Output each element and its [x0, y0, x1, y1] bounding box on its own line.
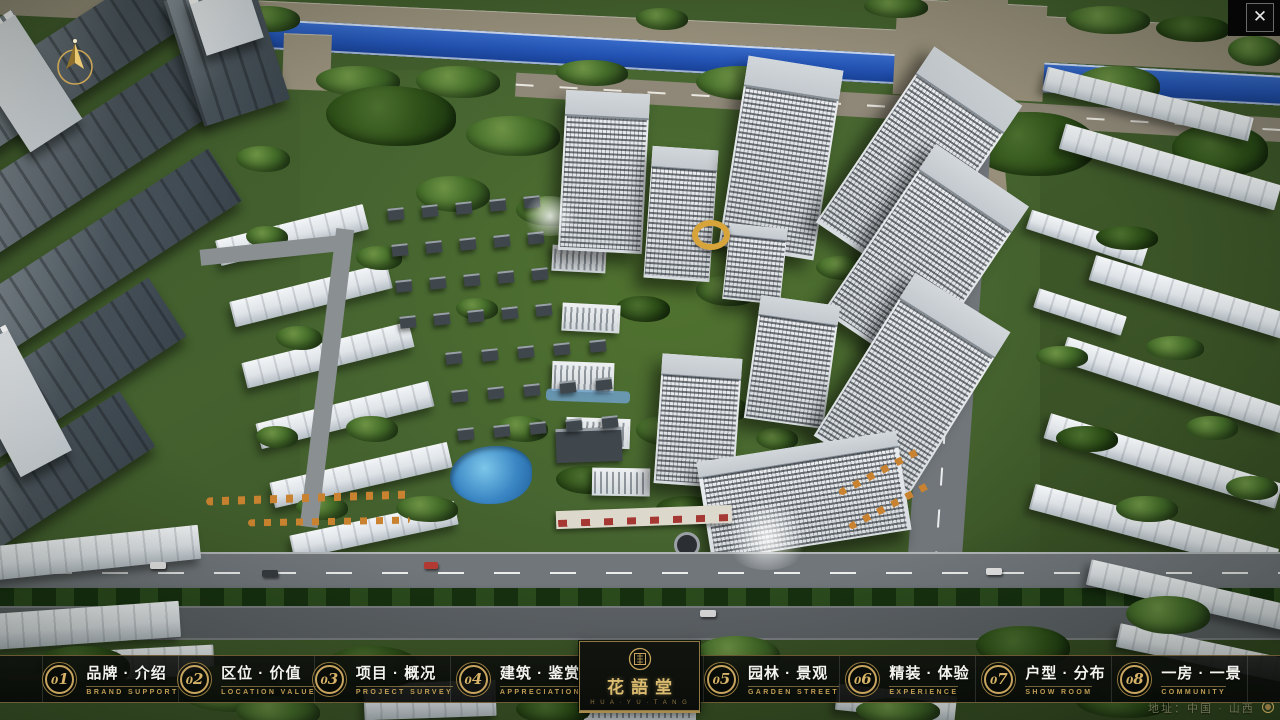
nav-item-location[interactable]: 02 区位 · 价值 LOCATION VALUE	[179, 656, 315, 702]
tree-grove	[616, 296, 670, 322]
nav-item-project[interactable]: 03 项目 · 概况 PROJECT SURVEY	[315, 656, 451, 702]
nav-label-zh: 园林 · 景观	[748, 662, 828, 683]
nav-label-zh: 一房 · 一景	[1161, 662, 1241, 683]
nav-number: 05	[713, 670, 731, 688]
nav-number: 03	[320, 670, 338, 688]
residential-tower	[744, 295, 840, 429]
nav-label-zh: 户型 · 分布	[1025, 662, 1105, 683]
tree-grove	[276, 326, 322, 350]
courtyard-house	[467, 309, 484, 323]
courtyard-house	[481, 348, 498, 362]
navbar-spacer	[1248, 656, 1280, 702]
car	[700, 610, 716, 617]
midrise-building	[592, 467, 650, 496]
nav-number-badge: 01	[42, 662, 77, 697]
sun-glare	[520, 196, 580, 236]
car	[150, 562, 166, 569]
residential-tower	[643, 146, 718, 282]
nav-label-zh: 精装 · 体验	[889, 662, 969, 683]
courtyard-house	[489, 198, 506, 212]
nav-label-en: EXPERIENCE	[889, 686, 958, 696]
nav-label-en: PROJECT SURVEY	[356, 686, 453, 696]
tree-grove	[1146, 336, 1204, 360]
courtyard-house	[517, 345, 534, 359]
courtyard-house	[497, 270, 514, 284]
courtyard-house	[595, 377, 612, 391]
courtyard-house	[555, 427, 622, 463]
courtyard-house	[445, 351, 462, 365]
courtyard-house	[455, 201, 472, 215]
nav-number-badge: 03	[312, 662, 347, 697]
sun-glare	[722, 506, 812, 570]
road	[948, 0, 1008, 28]
nav-label-zh: 品牌 · 介绍	[86, 662, 166, 683]
tree-grove	[864, 0, 928, 18]
courtyard-house	[387, 207, 404, 221]
courtyard-house	[493, 234, 510, 248]
tree-grove	[1226, 476, 1278, 500]
nav-item-interior[interactable]: 06 精装 · 体验 EXPERIENCE	[840, 656, 976, 702]
courtyard-house	[451, 389, 468, 403]
courtyard-house	[565, 418, 582, 432]
courtyard-house	[395, 279, 412, 293]
nav-label-en: BRAND SUPPORT	[86, 686, 178, 696]
courtyard-house	[601, 415, 618, 429]
courtyard-house	[457, 427, 474, 441]
courtyard-house	[535, 303, 552, 317]
courtyard-house	[493, 424, 510, 438]
nav-label-en: APPRECIATION	[500, 686, 581, 696]
nav-label-zh: 区位 · 价值	[221, 662, 301, 683]
nav-number: 04	[465, 670, 483, 688]
nav-number-badge: 06	[845, 662, 880, 697]
courtyard-house	[429, 276, 446, 290]
navbar-spacer	[0, 656, 43, 702]
brand-subtitle: H U A · Y U · T A N G	[590, 700, 689, 706]
nav-item-brand[interactable]: 01 品牌 · 介绍 BRAND SUPPORT	[43, 656, 179, 702]
nav-number: 07	[990, 670, 1008, 688]
tree-grove	[1056, 426, 1118, 452]
nav-number: 06	[854, 670, 872, 688]
nav-number-badge: 05	[704, 662, 739, 697]
courtyard-house	[553, 342, 570, 356]
nav-item-floorplan[interactable]: 07 户型 · 分布 SHOW ROOM	[976, 656, 1112, 702]
nav-number-badge: 07	[981, 662, 1016, 697]
landscape-pond	[450, 446, 532, 504]
car	[424, 562, 438, 569]
close-button[interactable]: ✕	[1246, 3, 1274, 32]
tree-grove	[636, 8, 688, 30]
tree-grove	[1116, 496, 1178, 522]
nav-item-landscape[interactable]: 05 园林 · 景观 GARDEN STREET	[704, 656, 840, 702]
brand-title: 花語堂	[600, 673, 679, 698]
courtyard-house	[463, 273, 480, 287]
tree-grove	[236, 146, 290, 172]
tree-grove	[1036, 346, 1088, 368]
courtyard-house	[589, 339, 606, 353]
building-slab	[1033, 288, 1127, 335]
nav-number-badge: 04	[456, 662, 491, 697]
nav-label-en: GARDEN STREET	[748, 686, 839, 696]
nav-label-en: SHOW ROOM	[1025, 686, 1092, 696]
tree-grove	[256, 426, 298, 448]
nav-label-en: COMMUNITY	[1161, 686, 1226, 696]
courtyard-house	[529, 421, 546, 435]
nav-number-badge: 02	[177, 662, 212, 697]
courtyard-house	[459, 237, 476, 251]
tree-grove	[1186, 416, 1238, 440]
residential-tower	[722, 223, 788, 305]
nav-number-badge: 08	[1117, 662, 1152, 697]
tree-grove	[346, 416, 398, 442]
presentation-stage: ✕ 01 品牌 · 介绍 BRAND SUPPORT 02 区位 · 价值 LO…	[0, 0, 1280, 720]
tree-grove	[1096, 226, 1158, 250]
courtyard-house	[487, 386, 504, 400]
courtyard-house	[399, 315, 416, 329]
compass-icon	[44, 34, 106, 96]
nav-item-views[interactable]: 08 一房 · 一景 COMMUNITY	[1112, 656, 1248, 702]
nav-item-architecture[interactable]: 04 建筑 · 鉴赏 APPRECIATION	[451, 656, 587, 702]
courtyard-house	[559, 380, 576, 394]
nav-label-zh: 建筑 · 鉴赏	[500, 662, 580, 683]
nav-label-en: LOCATION VALUE	[221, 686, 316, 696]
nav-number: 01	[51, 670, 69, 688]
nav-number: 08	[1126, 670, 1144, 688]
courtyard-house	[421, 204, 438, 218]
courtyard-house	[391, 243, 408, 257]
nav-number: 02	[186, 670, 204, 688]
courtyard-house	[531, 267, 548, 281]
nav-label-zh: 项目 · 概况	[356, 662, 436, 683]
courtyard-house	[433, 312, 450, 326]
courtyard-house	[523, 383, 540, 397]
car	[986, 568, 1002, 575]
road	[0, 606, 1280, 640]
gold-art-feature	[692, 220, 730, 250]
midrise-building	[561, 303, 620, 334]
logo-panel[interactable]: 花語堂 H U A · Y U · T A N G	[579, 641, 700, 711]
aerial-map-viewport[interactable]	[0, 0, 1280, 720]
car	[262, 570, 278, 577]
courtyard-house	[501, 306, 518, 320]
courtyard-house	[425, 240, 442, 254]
brand-seal-icon	[628, 647, 652, 671]
